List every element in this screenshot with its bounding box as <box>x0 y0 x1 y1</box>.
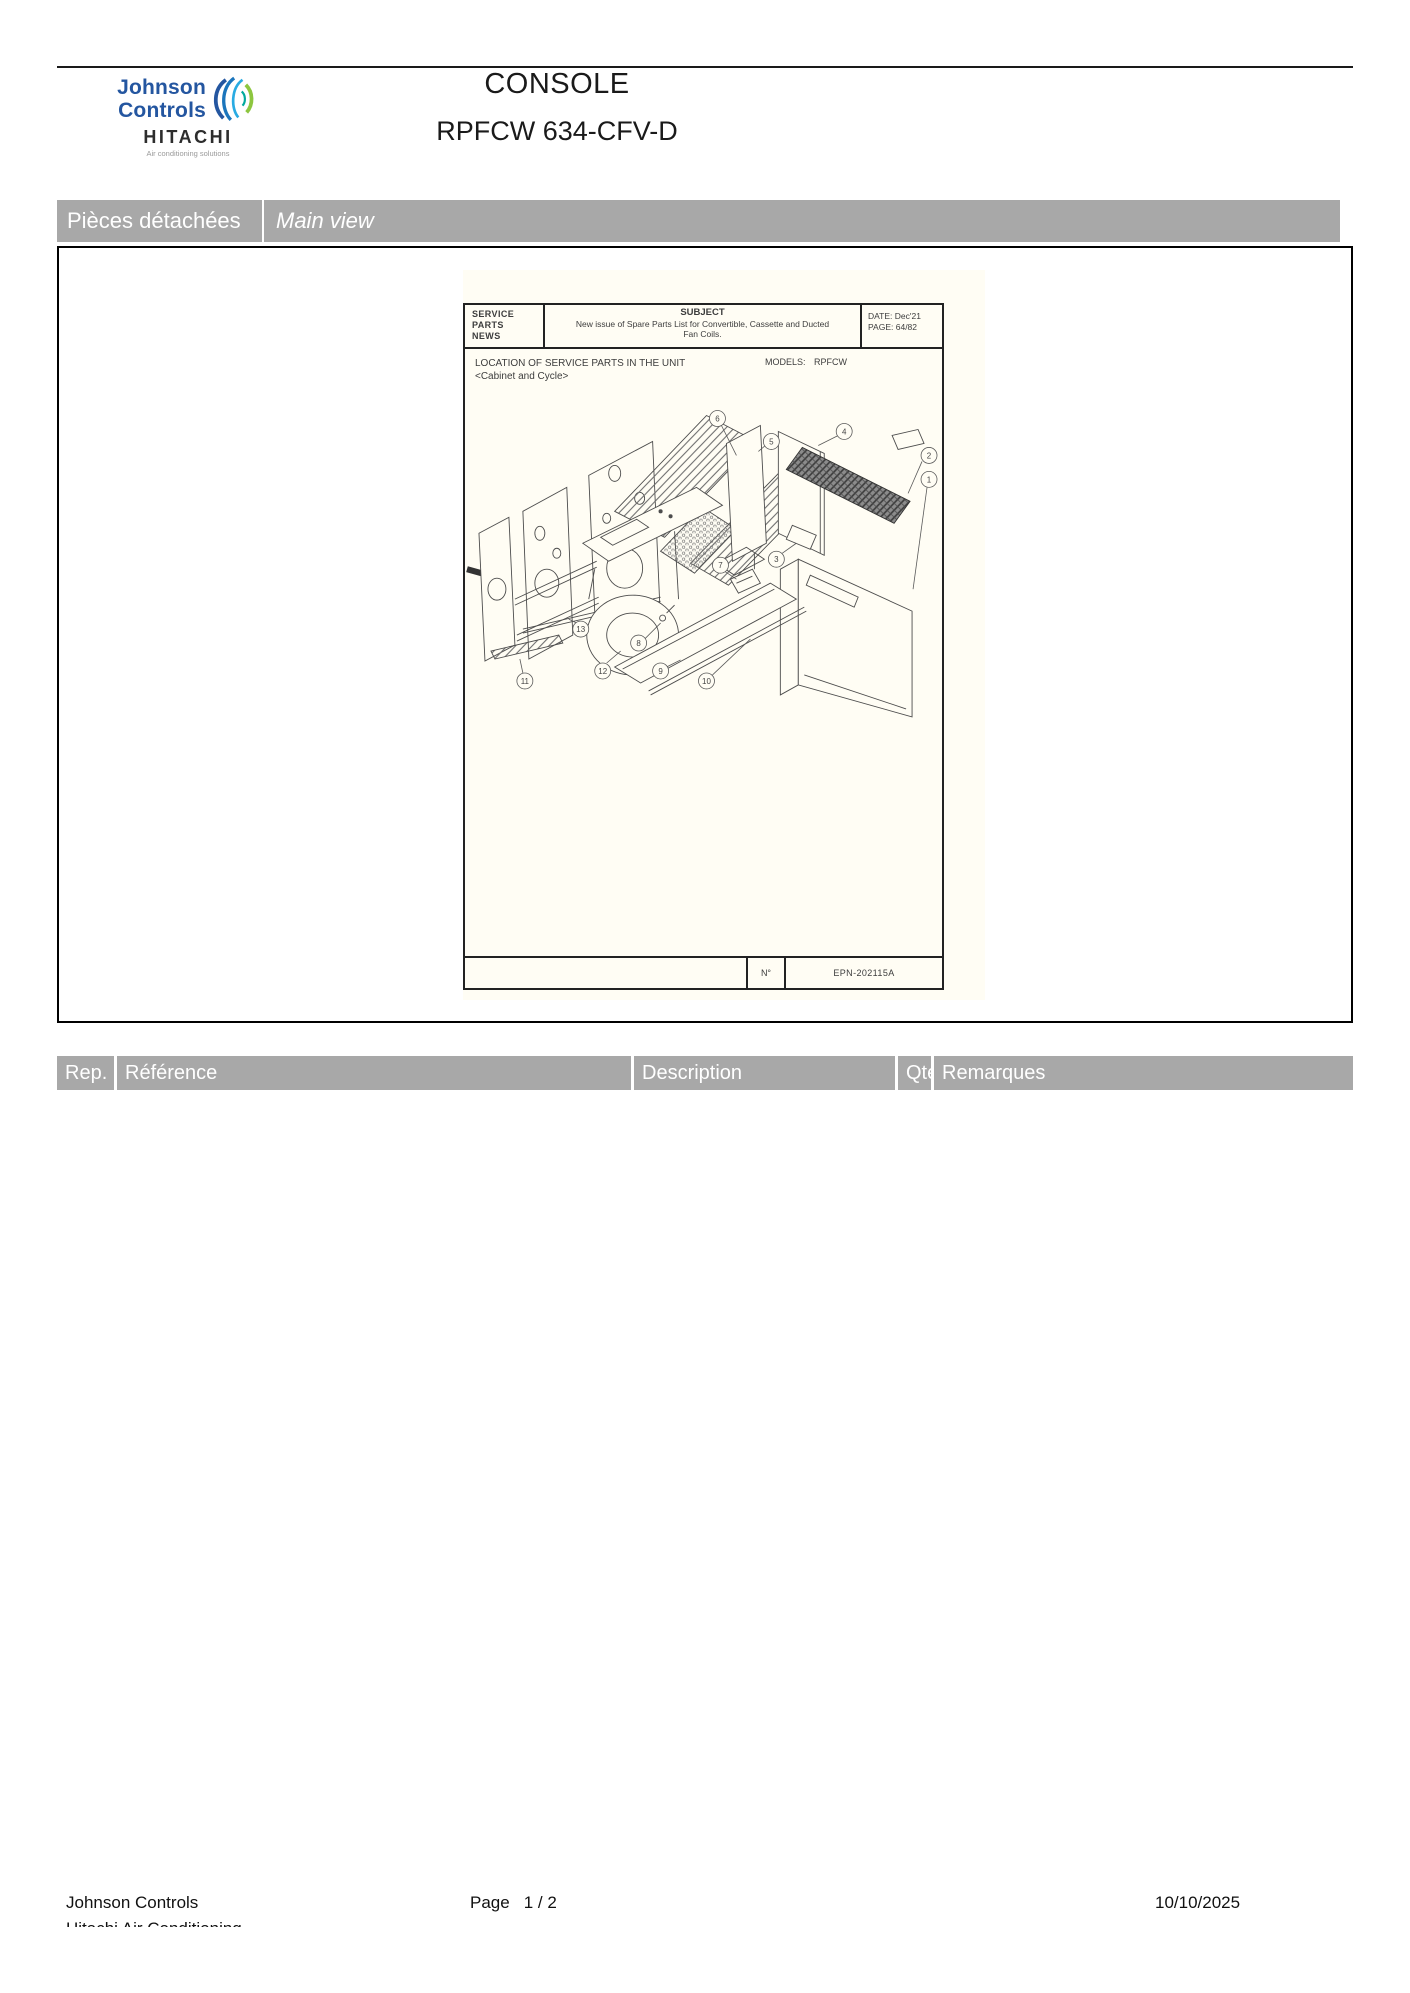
part-side-plate-small <box>479 517 515 661</box>
sheet-frame: SERVICE PARTS NEWS SUBJECT New issue of … <box>463 303 944 990</box>
part-cabinet-side <box>780 559 798 695</box>
part-side-plate-a <box>523 487 573 659</box>
subject-text-line2: Fan Coils. <box>545 329 860 339</box>
callout-8: 8 <box>636 639 641 648</box>
hitachi-tagline: Air conditioning solutions <box>116 149 260 158</box>
page-title: CONSOLE <box>307 68 807 101</box>
callout-4: 4 <box>842 427 847 436</box>
page-row: PAGE: 64/82 <box>868 322 942 333</box>
callout-9: 9 <box>658 667 663 676</box>
date-value: Dec'21 <box>895 311 921 321</box>
logo-line-controls: Controls <box>117 99 206 122</box>
date-row: DATE: Dec'21 <box>868 311 942 322</box>
callout-12: 12 <box>598 667 607 676</box>
main-view-container: SERVICE PARTS NEWS SUBJECT New issue of … <box>57 246 1353 1023</box>
models-text-block: MODELS: RPFCW <box>765 357 847 367</box>
diagram-linework <box>467 416 924 717</box>
parts-table-header: Rep. Référence Description Qté Remarques <box>57 1056 1353 1090</box>
column-header-reference: Référence <box>117 1056 631 1090</box>
hitachi-wordmark: HITACHI <box>116 127 260 148</box>
document-title-block: CONSOLE RPFCW 634-CFV-D <box>307 68 807 147</box>
column-header-remarks: Remarques <box>934 1056 1353 1090</box>
callout-7: 7 <box>718 561 723 570</box>
footer-date: 10/10/2025 <box>1155 1893 1240 1913</box>
subject-label: SUBJECT <box>545 308 860 318</box>
date-label: DATE: <box>868 311 892 321</box>
models-label: MODELS: <box>765 357 806 367</box>
callout-2: 2 <box>927 451 932 460</box>
column-header-description: Description <box>634 1056 895 1090</box>
location-line1: LOCATION OF SERVICE PARTS IN THE UNIT <box>475 357 685 370</box>
sheet-footer-empty-cell <box>465 958 748 988</box>
sheet-page-label: PAGE: <box>868 322 893 332</box>
footer-company-line2-clipped: Hitachi Air Conditioning <box>66 1919 242 1927</box>
johnson-controls-swirl-icon <box>210 74 260 124</box>
section-label-pieces-detachees: Pièces détachées <box>57 208 262 234</box>
model-reference-title: RPFCW 634-CFV-D <box>307 116 807 147</box>
date-page-cell: DATE: Dec'21 PAGE: 64/82 <box>860 305 942 347</box>
column-header-qty: Qté <box>898 1056 931 1090</box>
callout-11: 11 <box>521 677 530 686</box>
footer-page-indicator: Page1 / 2 <box>470 1893 557 1913</box>
johnson-controls-hitachi-logo: Johnson Controls HITACHI Air conditionin… <box>116 74 260 158</box>
parts-catalog-page: { "colors": { "bar_gray": "#a8a8a8", "jc… <box>0 0 1410 1993</box>
sheet-footer-row: N° EPN-202115A <box>465 956 942 988</box>
location-line2: <Cabinet and Cycle> <box>475 370 685 383</box>
footer-page-value: 1 / 2 <box>524 1893 557 1912</box>
logo-line-johnson: Johnson <box>117 76 206 99</box>
spn-word-news: NEWS <box>472 331 543 342</box>
location-text-block: LOCATION OF SERVICE PARTS IN THE UNIT <C… <box>475 357 685 383</box>
part-cabinet-front <box>798 559 912 717</box>
section-label-main-view: Main view <box>264 208 374 234</box>
sheet-page-value: 64/82 <box>896 322 917 332</box>
callout-1: 1 <box>927 475 932 484</box>
sheet-header-row: SERVICE PARTS NEWS SUBJECT New issue of … <box>465 305 942 349</box>
service-parts-news-sheet: SERVICE PARTS NEWS SUBJECT New issue of … <box>463 270 985 1000</box>
service-parts-news-cell: SERVICE PARTS NEWS <box>465 305 545 347</box>
callout-13: 13 <box>576 625 585 634</box>
spn-word-parts: PARTS <box>472 320 543 331</box>
sheet-body: LOCATION OF SERVICE PARTS IN THE UNIT <C… <box>465 349 942 954</box>
exploded-parts-diagram: 1 2 3 4 5 6 7 8 9 10 11 12 13 <box>465 383 942 943</box>
subject-text-line1: New issue of Spare Parts List for Conver… <box>545 319 860 329</box>
callout-3: 3 <box>774 555 779 564</box>
part-partition-panel <box>726 425 766 561</box>
footer-page-label: Page <box>470 1893 510 1912</box>
callout-5: 5 <box>769 437 774 446</box>
spn-word-service: SERVICE <box>472 309 543 320</box>
models-value: RPFCW <box>814 357 847 367</box>
sheet-number-label: N° <box>748 958 786 988</box>
sheet-number-value: EPN-202115A <box>786 958 942 988</box>
subject-cell: SUBJECT New issue of Spare Parts List fo… <box>545 305 860 347</box>
johnson-controls-wordmark: Johnson Controls <box>117 76 206 122</box>
callout-6: 6 <box>715 415 720 424</box>
section-header-bar: Pièces détachées Main view <box>57 200 1340 242</box>
callout-10: 10 <box>702 677 711 686</box>
column-header-rep: Rep. <box>57 1056 114 1090</box>
part-cap <box>892 429 924 449</box>
footer-company-name: Johnson Controls <box>66 1893 198 1913</box>
